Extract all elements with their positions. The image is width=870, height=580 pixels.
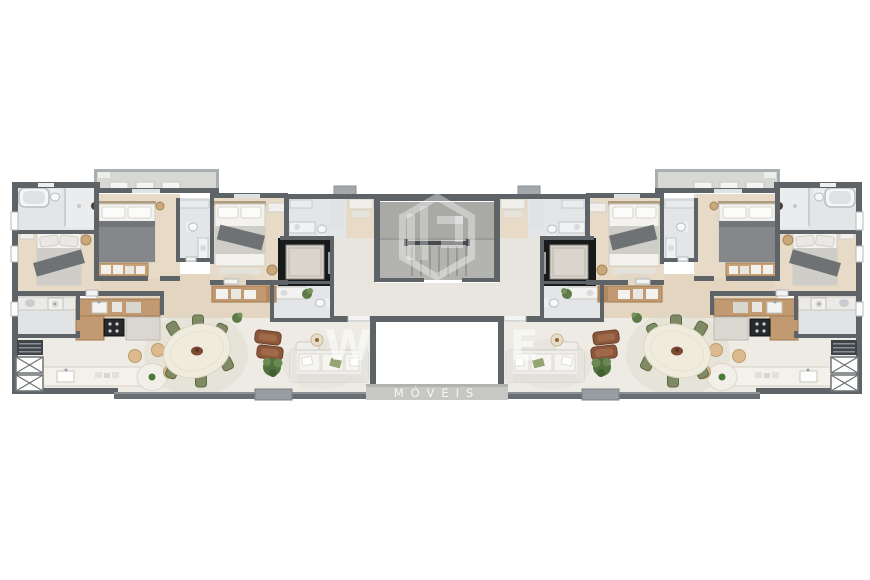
wall xyxy=(280,236,334,240)
wall xyxy=(15,291,86,296)
shower-drain xyxy=(77,204,81,208)
corridor-floor xyxy=(334,283,540,316)
dresser-drawer xyxy=(125,266,134,274)
wall xyxy=(498,322,504,384)
door-panel xyxy=(224,279,238,284)
wall xyxy=(94,276,148,281)
island-item xyxy=(764,373,770,378)
stove-burner xyxy=(762,329,765,332)
terrace-parapet-top xyxy=(498,392,760,394)
wall xyxy=(370,316,504,322)
sink-basin xyxy=(281,290,288,296)
dresser-drawer xyxy=(136,266,145,274)
window xyxy=(11,302,18,316)
appliance xyxy=(112,302,122,312)
sofa-backrest xyxy=(290,374,368,382)
wall xyxy=(712,291,776,296)
sofa-armrest xyxy=(577,350,584,382)
plant xyxy=(263,358,271,366)
watermark-logo-bar xyxy=(420,206,428,260)
faucet xyxy=(774,301,777,304)
toilet xyxy=(318,225,327,233)
wall xyxy=(176,258,186,262)
stool xyxy=(129,350,142,363)
stool xyxy=(152,344,165,357)
bathtub-basin xyxy=(829,191,851,204)
ac-unit xyxy=(162,182,180,189)
plant xyxy=(597,369,605,377)
wall xyxy=(660,198,664,264)
bed-pillow xyxy=(636,207,656,218)
sink-basin xyxy=(574,224,580,230)
appliance xyxy=(231,289,241,299)
bed-pillow xyxy=(241,207,261,218)
closet-shelf xyxy=(349,199,373,209)
dresser-drawer xyxy=(751,265,761,274)
bed-pillow xyxy=(749,207,772,218)
closet-box xyxy=(504,211,522,217)
bed-pillow xyxy=(815,235,834,247)
toilet-tank xyxy=(326,298,330,307)
door-panel xyxy=(678,257,688,261)
vent-grill-slat xyxy=(833,347,855,349)
window xyxy=(614,194,640,198)
bedroom-shelf xyxy=(268,203,285,212)
bed-pillow xyxy=(796,235,815,247)
wall xyxy=(374,196,380,282)
bedside-stool xyxy=(267,265,277,275)
ac-unit xyxy=(694,182,712,189)
wall xyxy=(15,334,80,338)
stool xyxy=(733,350,746,363)
door-panel xyxy=(776,290,788,296)
kitchen-island xyxy=(36,367,150,386)
balcony-door xyxy=(132,189,160,193)
toilet xyxy=(677,223,686,231)
watermark-letter-left: W xyxy=(325,321,371,370)
table-centerpiece xyxy=(149,374,156,381)
nightstand xyxy=(710,202,718,210)
closet-shelf xyxy=(501,199,525,209)
terrace-planter xyxy=(255,389,292,400)
dresser-drawer xyxy=(113,265,123,274)
lamp-top xyxy=(315,338,319,342)
toilet-tank xyxy=(544,298,548,307)
sink-basin xyxy=(587,290,594,296)
wall xyxy=(694,198,698,262)
stove-burner xyxy=(762,322,765,325)
toilet-tank xyxy=(813,189,824,193)
kitchen-sink xyxy=(767,302,782,313)
elevator-cab xyxy=(286,245,324,279)
stove xyxy=(750,319,770,336)
wall xyxy=(660,258,678,262)
wall xyxy=(726,276,780,281)
wall xyxy=(794,294,798,320)
wall xyxy=(270,318,332,322)
wall xyxy=(540,236,544,322)
wall xyxy=(776,230,859,234)
appliance xyxy=(618,290,630,299)
appliance xyxy=(733,302,748,313)
dresser-drawer xyxy=(763,265,773,274)
laundry-sink xyxy=(839,299,849,307)
laundry-sink xyxy=(25,299,35,307)
bedside-stool xyxy=(783,235,793,245)
bed-pillow xyxy=(102,207,125,218)
toilet xyxy=(548,225,557,233)
plant xyxy=(238,313,243,318)
window xyxy=(11,212,18,230)
ac-unit xyxy=(720,182,738,189)
wall xyxy=(710,291,714,315)
open-void xyxy=(376,322,498,384)
stove-burner xyxy=(108,329,111,332)
island-sink xyxy=(57,371,74,382)
appliance xyxy=(646,289,658,299)
bed-blanket xyxy=(719,221,775,262)
lamp-top xyxy=(555,338,559,342)
wall xyxy=(284,194,378,199)
window xyxy=(856,212,863,230)
stove-burner xyxy=(115,329,118,332)
shower-glass xyxy=(64,186,66,226)
window xyxy=(38,183,54,187)
vanity xyxy=(289,222,315,233)
island-item xyxy=(104,373,110,378)
appliance xyxy=(126,302,141,313)
bed-pillow xyxy=(128,207,151,218)
sink-basin xyxy=(668,245,674,251)
dresser-drawer xyxy=(101,265,111,274)
bed-pillow xyxy=(723,207,746,218)
wall xyxy=(600,284,604,322)
wall xyxy=(270,281,332,284)
kitchen-counter xyxy=(770,316,798,340)
stair-landing-edge xyxy=(380,238,494,240)
faucet xyxy=(807,369,810,372)
bath3-shelf xyxy=(290,200,312,208)
bed-pillow xyxy=(613,207,633,218)
ac-unit xyxy=(746,182,764,189)
island-item xyxy=(95,372,102,378)
bedroom-shelf xyxy=(589,203,606,212)
washer-knob xyxy=(54,303,56,305)
wall xyxy=(378,278,424,282)
wall xyxy=(160,291,164,315)
nightstand xyxy=(156,202,164,210)
bed-pillow xyxy=(218,207,238,218)
sink-basin xyxy=(294,224,300,230)
appliance xyxy=(752,302,762,312)
balcony-parapet xyxy=(655,169,780,172)
kitchen-island xyxy=(724,367,838,386)
wall xyxy=(775,186,780,276)
vent-grill-slat xyxy=(19,351,41,353)
plant xyxy=(307,288,313,294)
kitchen-counter xyxy=(76,316,104,340)
table-centerpiece xyxy=(195,348,199,352)
bath3-shelf xyxy=(562,200,584,208)
watermark-logo-bar xyxy=(407,214,415,260)
shower-glass xyxy=(808,186,810,226)
bedside-stool xyxy=(597,265,607,275)
bath2-shelf xyxy=(179,200,209,208)
wall xyxy=(196,258,214,262)
bedside-stool xyxy=(81,235,91,245)
plant xyxy=(269,369,277,377)
kitchen-bench xyxy=(126,317,160,340)
terrace-parapet-top xyxy=(114,392,376,394)
kitchen-sink xyxy=(92,302,107,313)
wall xyxy=(494,196,500,282)
wall xyxy=(694,276,714,281)
roof-vent xyxy=(98,172,110,178)
sofa-armrest xyxy=(290,350,297,382)
balcony-parapet xyxy=(94,169,219,172)
sofa-pillow xyxy=(561,356,572,366)
watermark-brand-text: MÓVEIS xyxy=(394,385,481,400)
balcony-parapet xyxy=(655,169,658,191)
toilet xyxy=(316,299,325,307)
sink-basin xyxy=(200,245,206,251)
wall xyxy=(650,280,664,285)
door-panel xyxy=(86,290,98,296)
vent-grill-slat xyxy=(833,351,855,353)
stove-burner xyxy=(755,329,758,332)
ac-unit xyxy=(110,182,128,189)
bed-pillow xyxy=(60,235,79,247)
wall xyxy=(270,284,274,322)
sofa-pillow xyxy=(301,356,312,366)
bed-blanket-fold xyxy=(719,221,775,227)
plant xyxy=(632,313,637,318)
floor-plan-rendering: WEMÓVEIS xyxy=(0,0,870,580)
floor-plan-canvas: WEMÓVEIS xyxy=(0,0,870,580)
watermark-letter-right: E xyxy=(510,321,539,370)
table-centerpiece xyxy=(675,348,679,352)
shower-stall xyxy=(330,200,344,228)
wall xyxy=(542,318,604,322)
plant xyxy=(592,359,601,368)
faucet xyxy=(98,301,101,304)
toilet xyxy=(815,193,824,201)
stove xyxy=(104,319,124,336)
wall xyxy=(15,230,98,234)
window xyxy=(820,183,836,187)
wall xyxy=(688,258,698,262)
bed-blanket-fold xyxy=(99,221,155,227)
closet-box xyxy=(352,211,370,217)
bed-blanket xyxy=(99,221,155,262)
plant xyxy=(603,358,611,366)
toilet xyxy=(51,193,60,201)
shower1-floor xyxy=(66,188,94,228)
window xyxy=(11,246,18,262)
window xyxy=(234,194,260,198)
wall xyxy=(284,194,289,240)
stove-burner xyxy=(755,322,758,325)
wall xyxy=(542,281,604,284)
wall xyxy=(94,186,99,276)
wall xyxy=(98,291,162,296)
wall xyxy=(462,278,496,282)
shower-drain xyxy=(793,204,797,208)
wall xyxy=(788,291,859,296)
island-item xyxy=(755,372,762,378)
stool xyxy=(710,344,723,357)
plant xyxy=(561,288,567,294)
wall xyxy=(330,236,334,322)
wall xyxy=(774,182,862,188)
balcony-door xyxy=(714,189,742,193)
vent-grill-slat xyxy=(19,343,41,345)
ac-unit xyxy=(136,182,154,189)
sofa-backrest xyxy=(506,374,584,382)
kitchen-bench xyxy=(714,317,748,340)
toilet xyxy=(550,299,559,307)
faucet xyxy=(65,369,68,372)
terrace-planter xyxy=(582,389,619,400)
door-panel xyxy=(636,279,650,284)
bed-pillow xyxy=(39,235,58,247)
washer-knob xyxy=(818,303,820,305)
dresser-drawer xyxy=(729,266,738,274)
balcony-parapet xyxy=(216,169,219,191)
window xyxy=(856,246,863,262)
wall xyxy=(176,198,180,262)
door-panel xyxy=(186,257,196,261)
wall xyxy=(794,334,859,338)
elevator-cab xyxy=(550,245,588,279)
bathtub-basin xyxy=(23,191,45,204)
wall xyxy=(210,198,214,264)
watermark-logo-hook xyxy=(455,216,463,242)
wall xyxy=(585,194,590,240)
island-sink xyxy=(800,371,817,382)
wall xyxy=(160,276,180,281)
corridor-arm-floor xyxy=(330,238,376,288)
watermark-logo-hook xyxy=(441,240,463,248)
roof-vent xyxy=(764,172,776,178)
island-item xyxy=(112,372,119,378)
wall xyxy=(496,194,590,199)
vanity xyxy=(559,222,585,233)
stove-burner xyxy=(108,322,111,325)
island-item xyxy=(772,372,779,378)
vent-grill-slat xyxy=(833,343,855,345)
vent-grill-slat xyxy=(19,347,41,349)
wall xyxy=(12,182,100,188)
wall xyxy=(540,236,594,240)
wall xyxy=(76,294,80,320)
bath2-shelf xyxy=(665,200,695,208)
toilet xyxy=(189,223,198,231)
appliance xyxy=(216,289,228,299)
dresser-drawer xyxy=(740,266,749,274)
toilet-tank xyxy=(50,189,61,193)
appliance xyxy=(633,289,643,299)
shower-stall xyxy=(530,200,544,228)
stove-burner xyxy=(115,322,118,325)
wall xyxy=(210,280,224,285)
window xyxy=(856,302,863,316)
corridor-arm-floor xyxy=(498,238,544,288)
table-centerpiece xyxy=(719,374,726,381)
plant xyxy=(274,359,283,368)
appliance xyxy=(244,290,256,299)
shower1-floor xyxy=(780,188,808,228)
apartment-unit-right xyxy=(494,169,863,400)
